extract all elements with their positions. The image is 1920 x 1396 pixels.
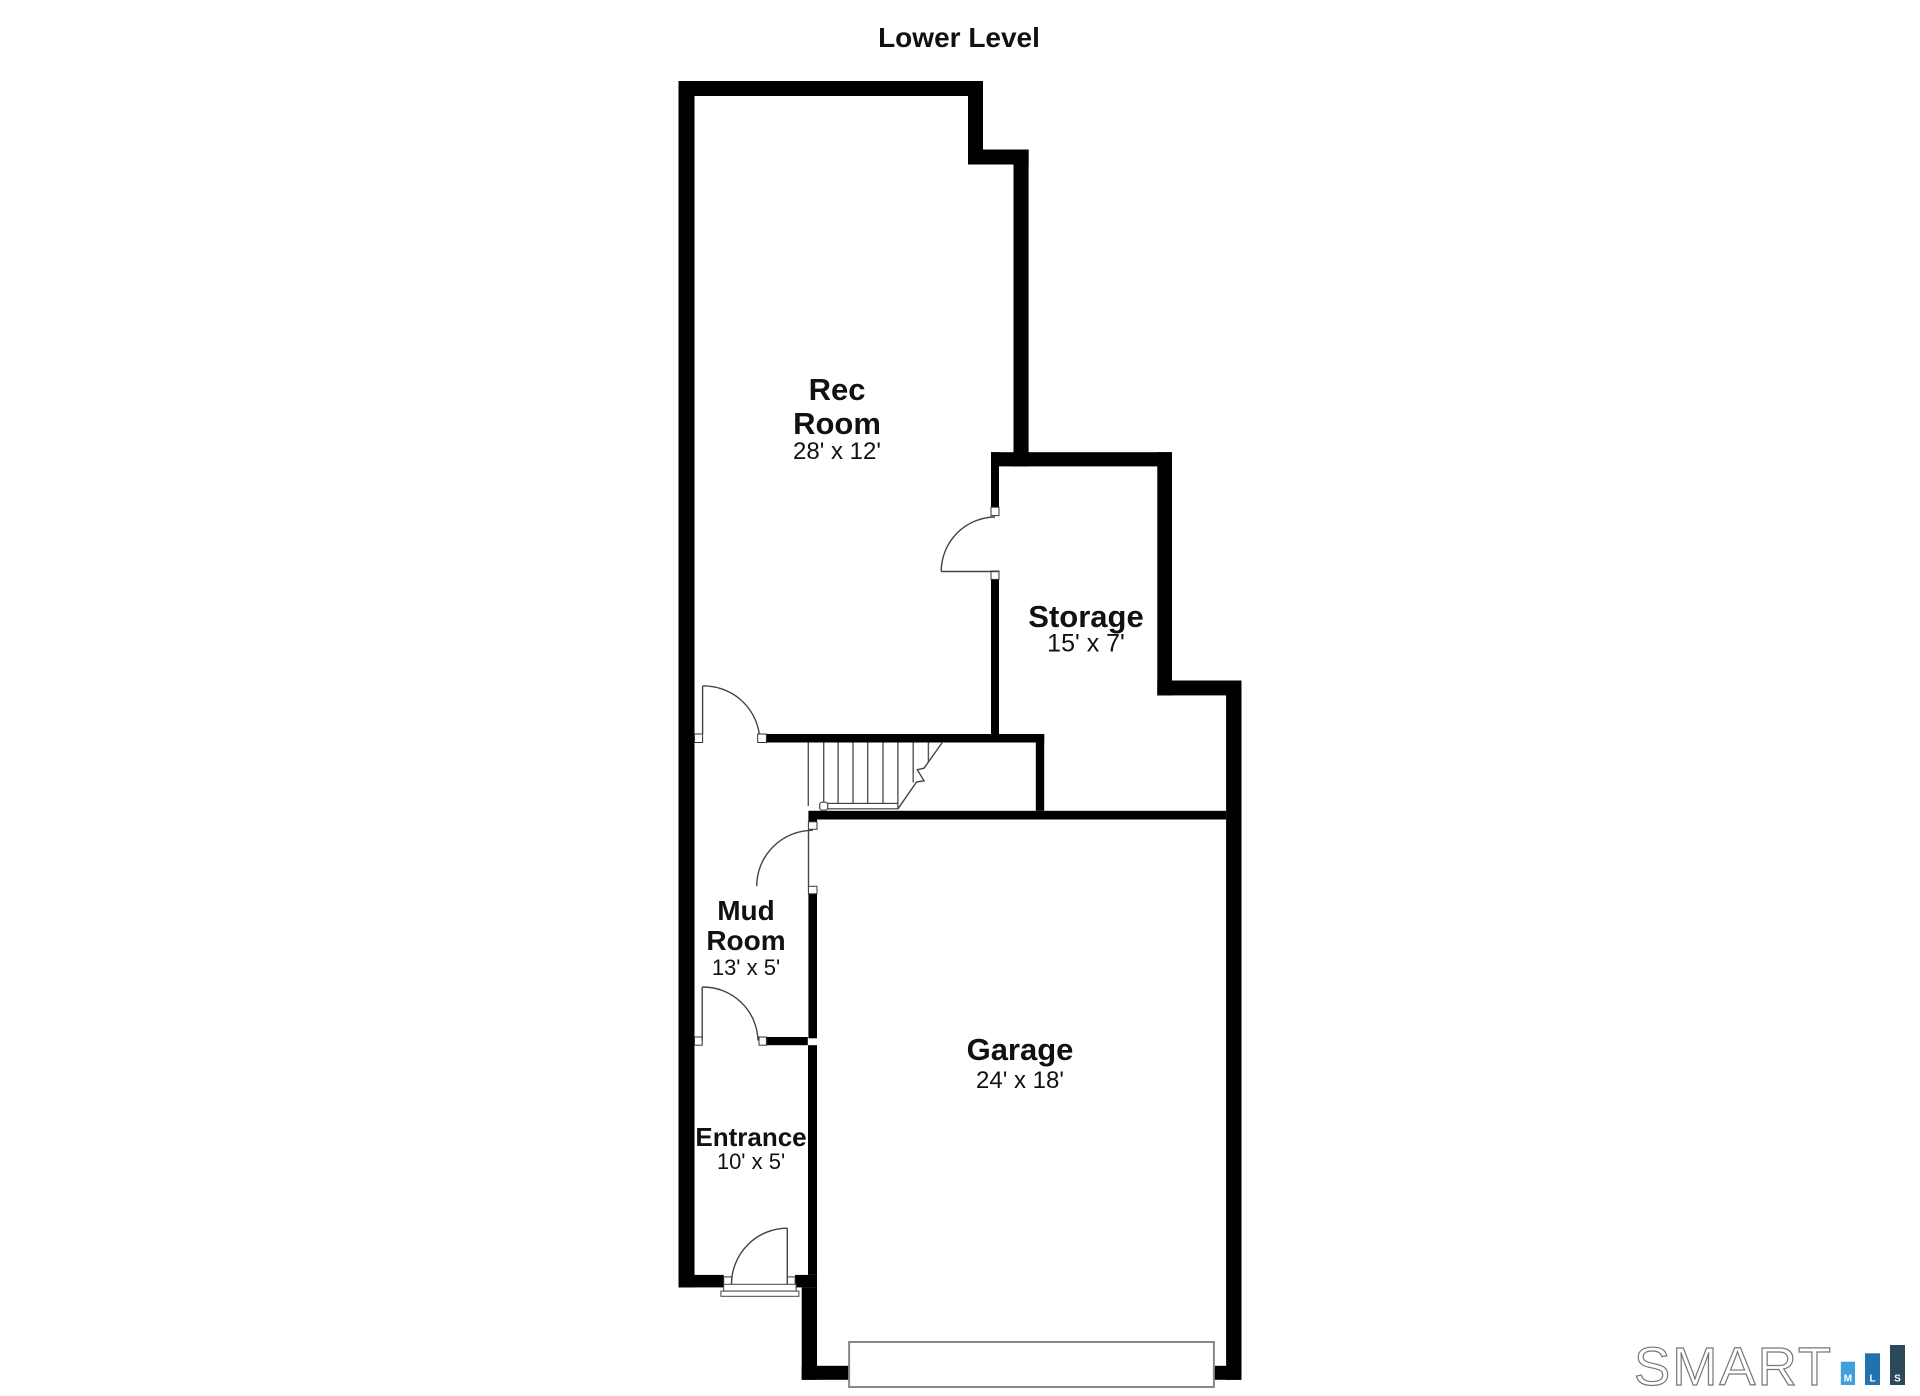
svg-text:10' x 5': 10' x 5' xyxy=(717,1149,785,1174)
svg-text:Lower Level: Lower Level xyxy=(878,22,1040,53)
svg-text:Room: Room xyxy=(706,925,785,956)
svg-text:24' x 18': 24' x 18' xyxy=(976,1067,1064,1094)
svg-text:M: M xyxy=(1844,1374,1852,1385)
svg-text:L: L xyxy=(1869,1374,1875,1385)
svg-text:15' x 7': 15' x 7' xyxy=(1047,630,1125,658)
svg-text:Rec: Rec xyxy=(809,372,866,407)
svg-text:Garage: Garage xyxy=(967,1032,1074,1067)
svg-text:Entrance: Entrance xyxy=(695,1122,806,1152)
svg-text:Room: Room xyxy=(793,406,881,441)
svg-text:13' x 5': 13' x 5' xyxy=(712,955,780,980)
svg-text:Mud: Mud xyxy=(717,895,775,926)
svg-text:SMART: SMART xyxy=(1634,1337,1833,1396)
svg-text:S: S xyxy=(1894,1374,1901,1385)
svg-text:28' x 12': 28' x 12' xyxy=(793,438,881,465)
